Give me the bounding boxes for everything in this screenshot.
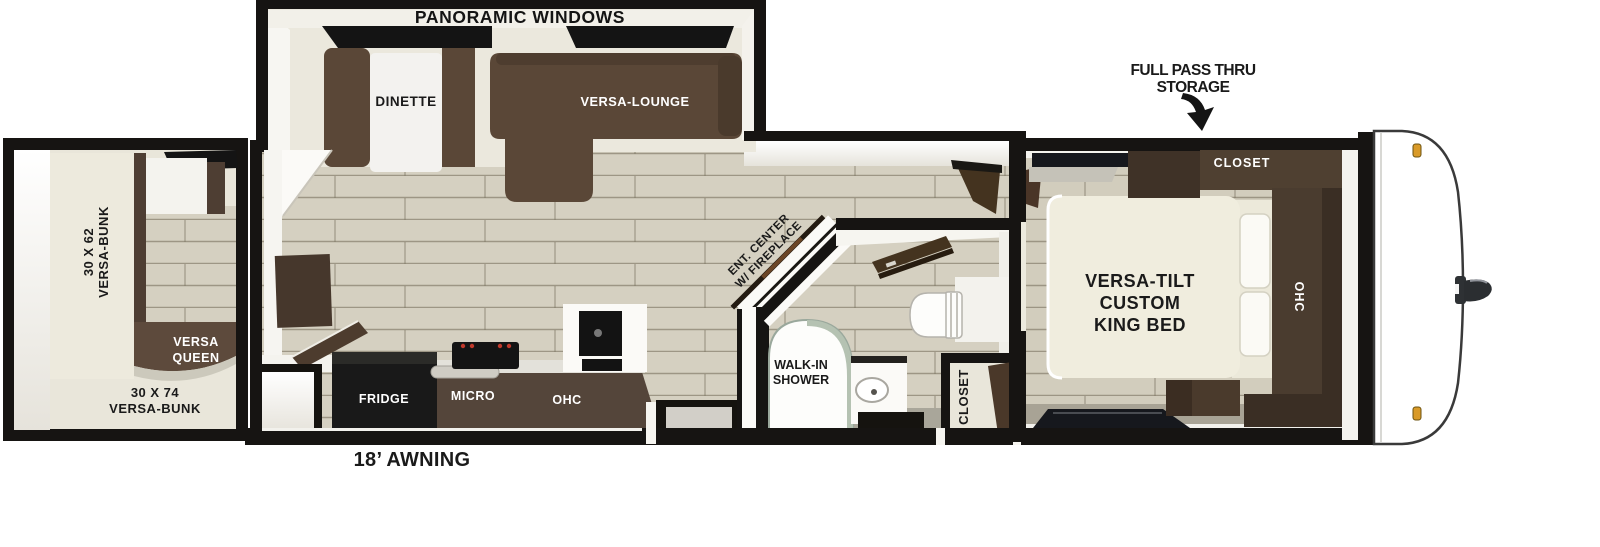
svg-text:VERSA: VERSA xyxy=(173,335,219,349)
svg-text:VERSA-TILT: VERSA-TILT xyxy=(1085,271,1195,291)
svg-text:OHC: OHC xyxy=(1292,282,1306,313)
svg-text:QUEEN: QUEEN xyxy=(173,351,220,365)
svg-text:CLOSET: CLOSET xyxy=(956,369,971,425)
svg-text:OHC: OHC xyxy=(552,393,581,407)
svg-text:VERSA-LOUNGE: VERSA-LOUNGE xyxy=(580,94,689,109)
svg-text:VERSA-BUNK: VERSA-BUNK xyxy=(96,206,111,298)
svg-text:FULL PASS THRU: FULL PASS THRU xyxy=(1130,62,1255,79)
svg-text:30 X 74: 30 X 74 xyxy=(131,385,180,400)
svg-text:30 X 62: 30 X 62 xyxy=(81,228,96,276)
svg-text:DINETTE: DINETTE xyxy=(375,94,436,109)
svg-text:CLOSET: CLOSET xyxy=(1214,156,1271,170)
svg-text:SHOWER: SHOWER xyxy=(773,373,829,387)
svg-text:CUSTOM: CUSTOM xyxy=(1100,293,1181,313)
svg-text:MICRO: MICRO xyxy=(451,389,495,403)
svg-text:VERSA-BUNK: VERSA-BUNK xyxy=(109,401,201,416)
svg-text:18’ AWNING: 18’ AWNING xyxy=(354,449,471,471)
svg-text:WALK-IN: WALK-IN xyxy=(774,358,827,372)
svg-text:PANORAMIC WINDOWS: PANORAMIC WINDOWS xyxy=(415,7,625,27)
svg-text:KING BED: KING BED xyxy=(1094,315,1186,335)
svg-text:FRIDGE: FRIDGE xyxy=(359,392,409,406)
svg-text:STORAGE: STORAGE xyxy=(1157,79,1230,96)
